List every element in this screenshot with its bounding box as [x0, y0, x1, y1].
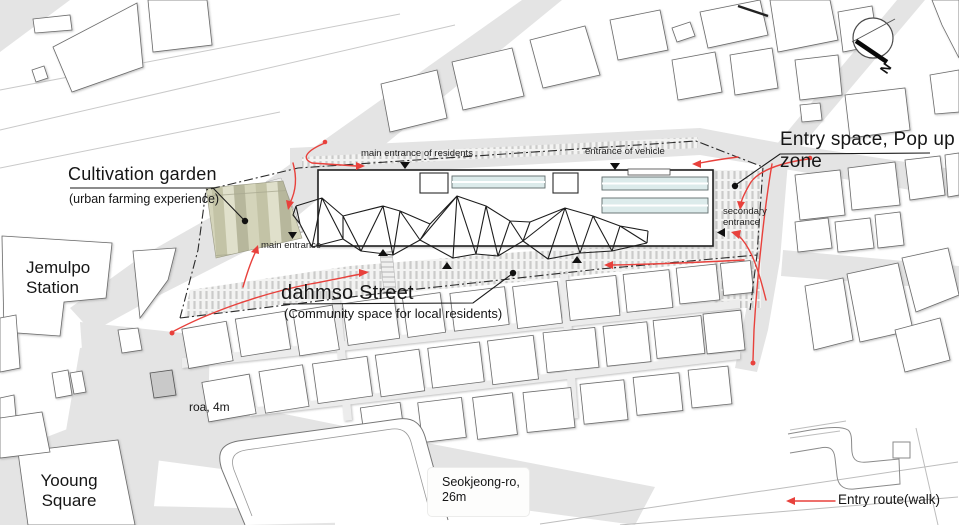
main-entrance-label: main entrance	[261, 240, 321, 251]
site-plan: N Cultivation garden (urban farming expe…	[0, 0, 959, 525]
road-4m-label: roa, 4m	[189, 400, 230, 414]
dahmso-street-label: dahmso Street	[281, 282, 414, 306]
seokjeong-ro-box: Seokjeong-ro, 26m	[427, 467, 530, 517]
main-building	[293, 169, 713, 259]
ramp-structure	[788, 427, 910, 489]
cultivation-garden-sublabel: (urban farming experience)	[69, 192, 219, 207]
main-entrance-residents-label: main entrance of residents	[361, 148, 473, 159]
entrance-of-vehicle-label: entrance of vehicle	[585, 146, 665, 157]
legend-arrow	[786, 497, 835, 505]
seokjeong-ro-label: Seokjeong-ro, 26m	[442, 475, 520, 505]
yooung-square-label: Yooung Square	[36, 471, 102, 511]
north-label: N	[877, 60, 895, 76]
vehicle-gate	[628, 169, 670, 175]
secondary-entrance-label: secondary entrance	[723, 206, 767, 228]
jemulpo-station-label: Jemulpo Station	[26, 258, 90, 298]
entry-route-legend-label: Entry route(walk)	[838, 492, 940, 508]
dahmso-street-sublabel: (Community space for local residents)	[284, 306, 502, 321]
cultivation-garden-label: Cultivation garden	[68, 164, 217, 185]
entry-space-label: Entry space, Pop up zone	[780, 129, 959, 174]
site-plan-map: N	[0, 0, 959, 525]
